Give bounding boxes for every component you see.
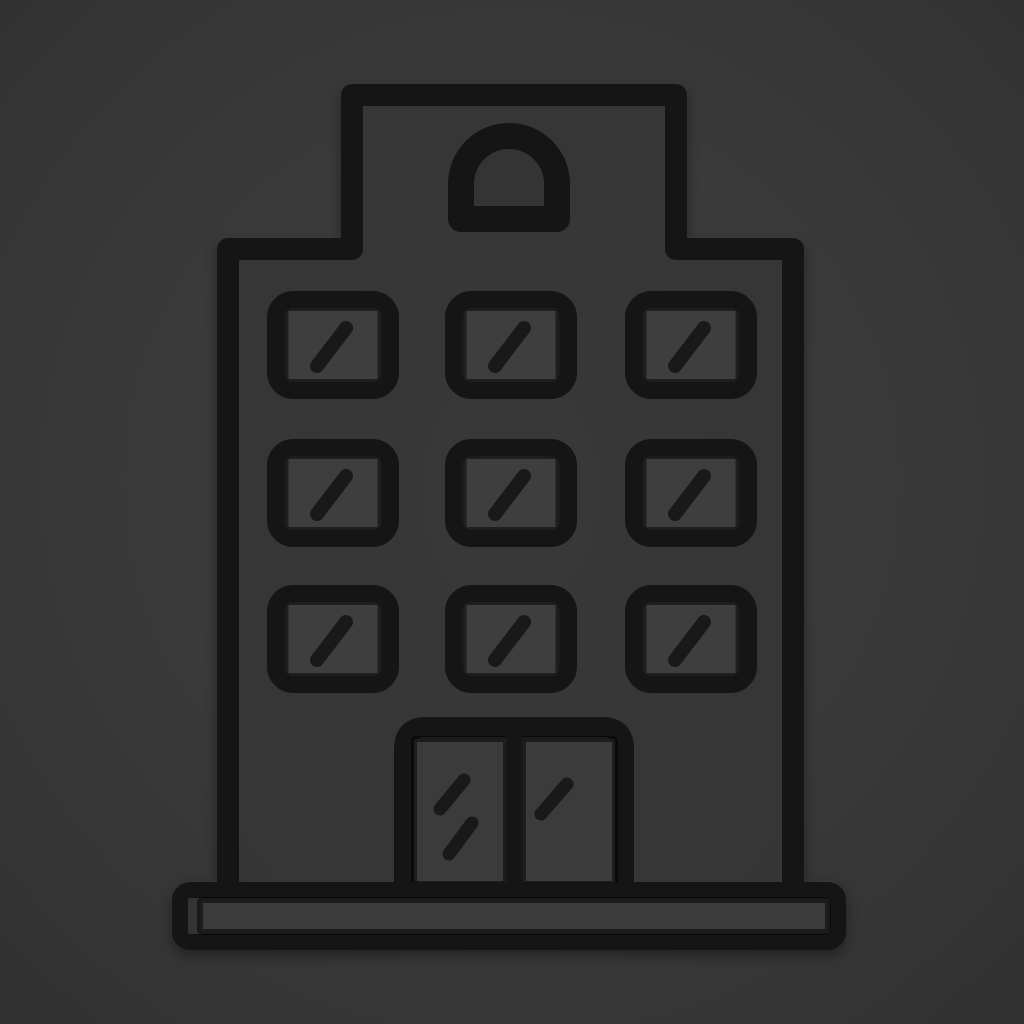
window [276,448,391,539]
window [634,448,749,539]
window [276,300,391,391]
window-grid [276,300,749,685]
window [454,300,569,391]
window [634,300,749,391]
door-leaf-left [414,739,506,884]
building-icon [0,0,1024,1024]
window [276,594,391,685]
base-inner [200,900,828,932]
window [454,448,569,539]
window [634,594,749,685]
entrance-door [404,727,624,888]
arch-window-icon [461,136,557,219]
base-plinth [180,890,838,942]
background [0,0,1024,1024]
window [454,594,569,685]
